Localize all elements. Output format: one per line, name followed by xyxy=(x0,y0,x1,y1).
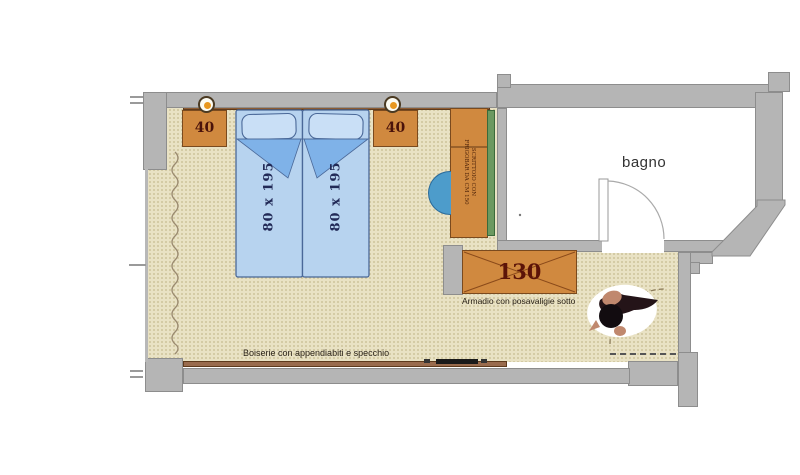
desk-label: SCRITTOIO CON FRIGOBAR DA CM 150 xyxy=(462,112,476,232)
desk-label-line1: SCRITTOIO CON xyxy=(470,112,477,232)
bathroom-label: bagno xyxy=(622,154,666,171)
bathroom-door-arc xyxy=(608,181,664,239)
person-figure xyxy=(584,280,661,341)
bed-right-dimension: 80 x 195 xyxy=(329,155,344,239)
nightstand-right-size: 40 xyxy=(373,110,418,147)
floor-plan: 40 40 80 x 195 80 x 195 130 Armadio con … xyxy=(0,0,800,475)
bathroom-diagonal-wall xyxy=(712,200,785,256)
bathroom-dot xyxy=(519,214,521,216)
bed-left-dimension: 80 x 195 xyxy=(262,155,277,239)
wardrobe-size: 130 xyxy=(462,250,577,294)
wardrobe-caption: Armadio con posavaligie sotto xyxy=(462,296,575,306)
bathroom-door-gap xyxy=(602,239,664,253)
desk-label-line2: FRIGOBAR DA CM 150 xyxy=(463,112,470,232)
boiserie-caption: Boiserie con appendiabiti e specchio xyxy=(243,348,389,358)
bathroom-door-leaf xyxy=(599,179,608,241)
plan-overlay xyxy=(0,0,800,475)
nightstand-left-size: 40 xyxy=(182,110,227,147)
curtain-line xyxy=(172,152,178,354)
